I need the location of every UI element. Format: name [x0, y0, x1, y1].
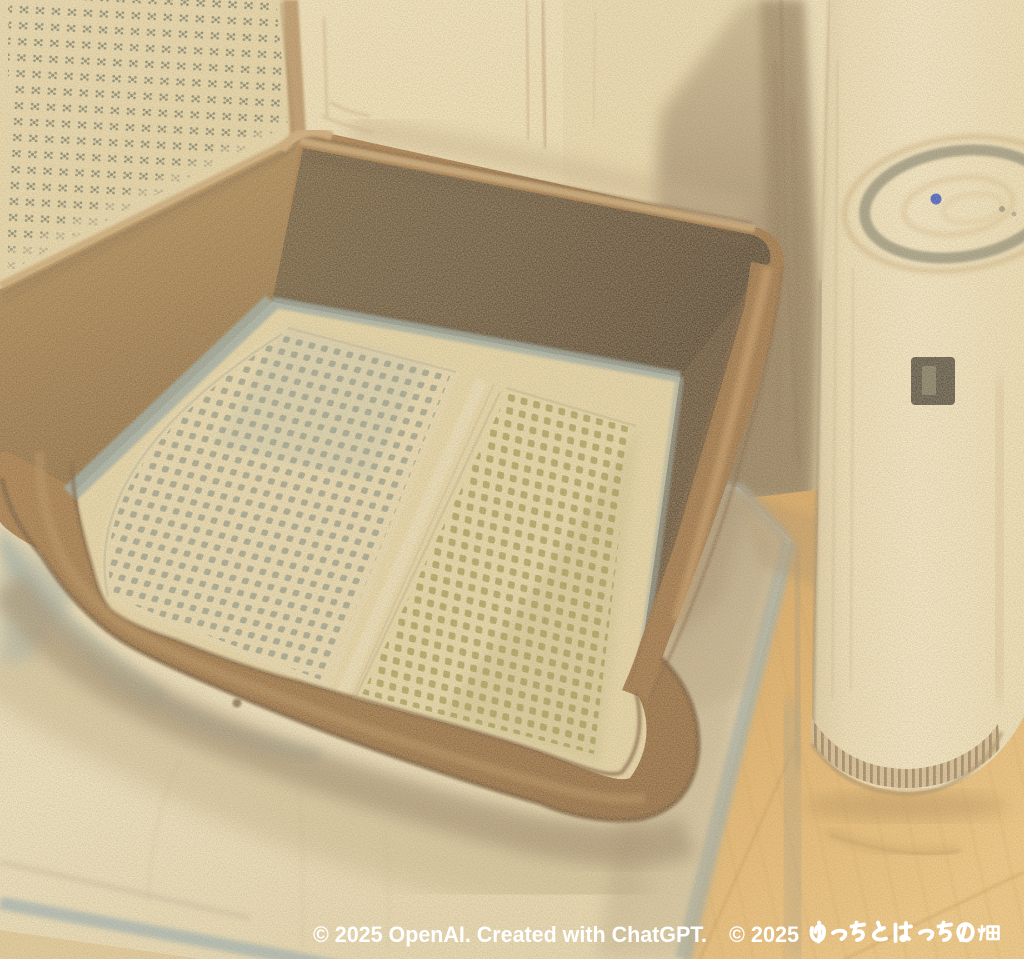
svg-text:© 2025: © 2025: [729, 922, 799, 947]
svg-text:© 2025 OpenAI. Created with Ch: © 2025 OpenAI. Created with ChatGPT.: [313, 922, 707, 947]
